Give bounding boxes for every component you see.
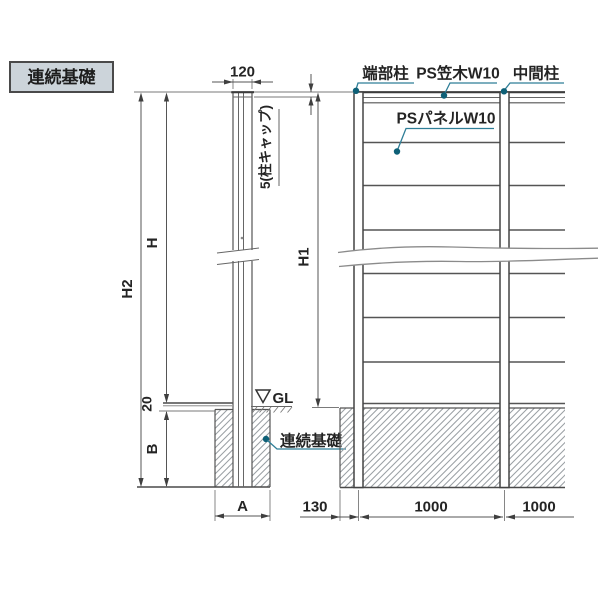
dim-a: A: [215, 490, 270, 521]
arrow-right-icon: [261, 514, 270, 519]
arrow-up-icon: [164, 93, 169, 102]
leader-dot: [394, 148, 400, 154]
dim-cap-label: 5(柱キャップ): [257, 105, 273, 189]
elevation-view: H1 端部柱 PS笠木W10 中間柱 PSパネルW10: [296, 64, 599, 522]
end-post: [354, 92, 363, 488]
leader-dot: [353, 88, 359, 94]
dim-20: 20: [139, 396, 217, 412]
side-view: 120 5(柱キャップ) H2 H 20: [119, 64, 346, 522]
foundation-callout: 連続基礎: [263, 431, 346, 450]
arrow-right-icon: [331, 515, 340, 520]
dim-h: H: [144, 93, 169, 404]
arrow-up-icon: [309, 97, 314, 106]
panel-callout: PSパネルW10: [394, 110, 496, 155]
dim-120-value: 120: [230, 64, 255, 81]
panel-label: PSパネルW10: [396, 110, 495, 128]
arrow-left-icon: [360, 515, 369, 520]
dim-20-value: 20: [139, 396, 155, 412]
arrow-right-icon: [494, 515, 503, 520]
leader-line: [505, 83, 565, 90]
intermediate-post: [500, 92, 509, 488]
end-post-label: 端部柱: [362, 64, 409, 83]
dim-bottom-chain: 130 1000 1000: [300, 490, 574, 521]
fence-rails: [363, 143, 565, 404]
dim-a-value: A: [237, 498, 248, 515]
arrow-left-icon: [506, 515, 515, 520]
page-title: 連続基礎: [28, 67, 97, 87]
dim-120-extensions: [233, 79, 252, 89]
dim-h-value: H: [144, 238, 161, 249]
dim-120: 120: [212, 64, 273, 90]
end-post-callout: 端部柱: [353, 64, 414, 95]
arrow-up-icon: [138, 93, 143, 102]
title-box: 連続基礎: [10, 62, 113, 92]
arrow-down-icon: [164, 394, 169, 403]
dim-cap: 5(柱キャップ): [254, 74, 317, 189]
foundation-diagram: 連続基礎 120: [0, 0, 600, 600]
coping-label: PS笠木W10: [416, 64, 500, 83]
mid-post-label: 中間柱: [513, 64, 560, 83]
dim-cap-extensions: [254, 92, 317, 97]
arrow-down-icon: [315, 399, 320, 408]
drawing-canvas: 連続基礎 120: [0, 0, 600, 600]
dim-h2-value: H2: [119, 279, 136, 298]
arrow-down-icon: [309, 84, 314, 93]
dim-h1: H1: [296, 92, 354, 408]
dim-1000b-value: 1000: [522, 499, 555, 516]
mid-post-callout: 中間柱: [501, 64, 564, 95]
coping-callout: PS笠木W10: [416, 64, 500, 99]
dim-b: B: [144, 411, 169, 487]
leader-line: [398, 129, 495, 151]
foundation-label: 連続基礎: [280, 431, 343, 450]
arrow-left-icon: [215, 514, 224, 519]
gl-triangle-icon: [256, 390, 270, 403]
post-center-mark: [241, 237, 244, 240]
arrow-up-icon: [164, 411, 169, 420]
leader-line: [356, 83, 414, 90]
arrow-down-icon: [164, 478, 169, 487]
dim-h1-value: H1: [296, 247, 313, 266]
arrow-down-icon: [138, 478, 143, 487]
arrow-right-icon: [350, 515, 359, 520]
leader-dot: [501, 88, 507, 94]
post-through-foundation-side: [234, 409, 252, 487]
leader-dot: [441, 92, 447, 98]
dim-1000a-value: 1000: [414, 499, 447, 516]
foundation-hatch-elevation: [340, 408, 565, 488]
gl-label: GL: [273, 390, 294, 407]
dim-b-value: B: [144, 443, 161, 454]
dim-130-value: 130: [302, 499, 327, 516]
